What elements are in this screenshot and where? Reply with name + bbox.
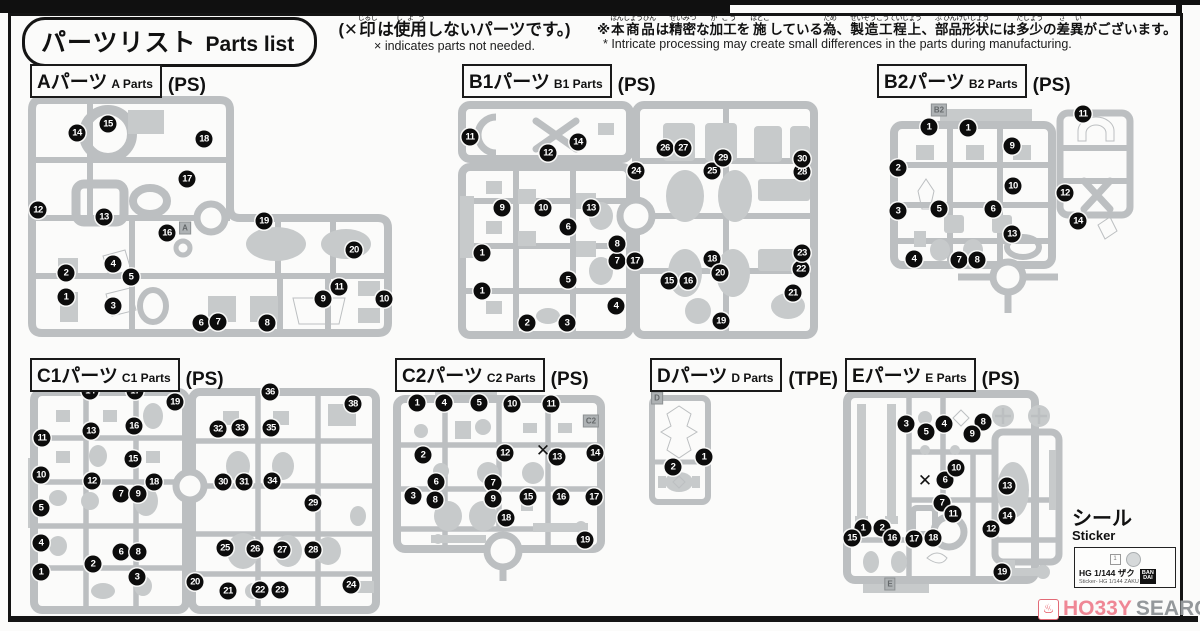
runner-c1-label-en: C1 Parts: [122, 371, 171, 385]
runner-e-material: (PS): [982, 369, 1020, 392]
part-badge-c1-29: 29: [305, 495, 322, 512]
runner-c1-label-jp: C1パーツ: [37, 361, 118, 388]
part-badge-c2-3: 3: [405, 488, 422, 505]
sticker-dot: [1126, 552, 1141, 567]
part-badge-e-15: 15: [844, 530, 861, 547]
part-badge-c1-1: 1: [33, 564, 50, 581]
part-badge-c2-10: 10: [504, 396, 521, 413]
part-badge-b1-27: 27: [675, 140, 692, 157]
part-badge-b1-29: 29: [715, 150, 732, 167]
part-badge-c1-3: 3: [129, 569, 146, 586]
runner-b2-header: B2パーツB2 Parts(PS): [877, 64, 1071, 98]
part-badge-c1-21: 21: [220, 583, 237, 600]
part-badge-c2-18: 18: [498, 510, 515, 527]
part-badge-b1-24: 24: [628, 163, 645, 180]
part-badge-a-19: 19: [256, 213, 273, 230]
title-en: Parts list: [206, 33, 295, 57]
part-badge-a-4: 4: [105, 256, 122, 273]
part-badge-b1-3: 3: [559, 315, 576, 332]
part-badge-c1-23: 23: [272, 582, 289, 599]
part-badge-b1-17: 17: [627, 253, 644, 270]
part-badge-b2-5: 5: [931, 201, 948, 218]
part-badge-a-12: 12: [30, 202, 47, 219]
part-badge-b1-14: 14: [570, 134, 587, 151]
part-badge-e-18: 18: [925, 530, 942, 547]
parts-list-page: パーツリスト Parts list (✕印じるしは使用しようしないパーツです。)…: [0, 0, 1200, 631]
part-badge-b2-12: 12: [1057, 185, 1074, 202]
part-badge-c1-16: 16: [126, 418, 143, 435]
part-badge-a-3: 3: [105, 298, 122, 315]
part-badge-b1-2: 2: [519, 315, 536, 332]
part-badge-c1-5: 5: [33, 500, 50, 517]
part-badge-c1-10: 10: [33, 467, 50, 484]
part-badge-c1-27: 27: [274, 542, 291, 559]
part-badge-c2-5: 5: [471, 395, 488, 412]
part-badge-a-18: 18: [196, 131, 213, 148]
part-badge-b2-1: 1: [960, 120, 977, 137]
note-mfg-jp: ※本商品ほんしょうひんは精密せいみつな加工か こうを施ほどこしている為ため、製造…: [597, 15, 1182, 37]
runner-c1-sprue: [28, 386, 382, 616]
part-badge-e-16: 16: [884, 530, 901, 547]
sticker-kit-sub: Sticker- HG 1/144 ZAKU: [1079, 579, 1139, 585]
part-badge-c1-13: 13: [83, 423, 100, 440]
part-badge-c1-12: 12: [84, 473, 101, 490]
part-badge-b2-9: 9: [1004, 138, 1021, 155]
runner-b2-label-jp: B2パーツ: [884, 67, 965, 94]
part-badge-a-9: 9: [315, 291, 332, 308]
part-badge-c1-28: 28: [305, 542, 322, 559]
runner-d-label-box: DパーツD Parts: [650, 358, 782, 392]
runner-b1-label-box: B1パーツB1 Parts: [462, 64, 612, 98]
part-badge-e-4: 4: [936, 416, 953, 433]
runner-e-sprue: [843, 390, 1065, 612]
part-badge-e-11: 11: [945, 506, 962, 523]
frame-bottom: [8, 616, 1198, 622]
part-badge-b1-11: 11: [462, 129, 479, 146]
part-badge-e-14: 14: [999, 508, 1016, 525]
runner-e-label-box: EパーツE Parts: [845, 358, 976, 392]
runner-c2-label-en: C2 Parts: [487, 371, 536, 385]
part-badge-b2-7: 7: [951, 252, 968, 269]
sticker-sheet: 1 HG 1/144 ザク Sticker- HG 1/144 ZAKU BAN…: [1074, 547, 1176, 588]
part-badge-a-20: 20: [346, 242, 363, 259]
runner-c1-header: C1パーツC1 Parts(PS): [30, 358, 224, 392]
runner-b2-label-en: B2 Parts: [969, 77, 1018, 91]
runner-c2-header: C2パーツC2 Parts(PS): [395, 358, 589, 392]
part-badge-a-5: 5: [123, 269, 140, 286]
part-badge-c1-36: 36: [262, 384, 279, 401]
hobby-search-watermark: ♨ HO33Y SEARCH: [1038, 597, 1200, 621]
part-badge-c2-15: 15: [520, 489, 537, 506]
part-badge-b1-16: 16: [680, 273, 697, 290]
part-badge-c1-33: 33: [232, 420, 249, 437]
runner-b1-sprue: [458, 101, 818, 339]
part-badge-c2-13: 13: [549, 449, 566, 466]
runner-c2-label-box: C2パーツC2 Parts: [395, 358, 545, 392]
runner-e-label-jp: Eパーツ: [852, 361, 921, 388]
part-badge-c2-2: 2: [415, 447, 432, 464]
part-badge-b1-7: 7: [609, 253, 626, 270]
not-used-x-mark-c2: ✕: [536, 441, 550, 461]
part-badge-b1-19: 19: [713, 313, 730, 330]
part-badge-b1-22: 22: [793, 261, 810, 278]
part-badge-b2-2: 2: [890, 160, 907, 177]
note-mfg-en: * Intricate processing may create small …: [597, 38, 1182, 51]
part-badge-e-12: 12: [983, 521, 1000, 538]
part-badge-b1-26: 26: [657, 140, 674, 157]
part-badge-b2-14: 14: [1070, 213, 1087, 230]
part-badge-b1-23: 23: [794, 245, 811, 262]
part-badge-c2-12: 12: [497, 445, 514, 462]
sticker-section: シール Sticker 1 HG 1/144 ザク Sticker- HG 1/…: [1072, 509, 1182, 588]
runner-b2-label-box: B2パーツB2 Parts: [877, 64, 1027, 98]
hobby-search-flame-icon: ♨: [1038, 599, 1059, 620]
runner-e-header: EパーツE Parts(PS): [845, 358, 1020, 392]
part-badge-a-11: 11: [331, 279, 348, 296]
part-badge-b2-6: 6: [985, 201, 1002, 218]
runner-a-material: (PS): [168, 75, 206, 98]
part-badge-e-3: 3: [898, 416, 915, 433]
part-badge-c2-7: 7: [485, 475, 502, 492]
runner-a-header: AパーツA Parts(PS): [30, 64, 206, 98]
note-manufacturing: ※本商品ほんしょうひんは精密せいみつな加工か こうを施ほどこしている為ため、製造…: [597, 15, 1182, 51]
part-badge-c1-7: 7: [113, 486, 130, 503]
watermark-hobby: HO33Y: [1063, 597, 1132, 621]
part-badge-c1-26: 26: [247, 541, 264, 558]
part-badge-b2-1: 1: [921, 119, 938, 136]
part-badge-c1-35: 35: [263, 420, 280, 437]
part-badge-c1-31: 31: [236, 474, 253, 491]
runner-b1-label-en: B1 Parts: [554, 77, 603, 91]
runner-b1-material: (PS): [618, 75, 656, 98]
part-badge-c2-17: 17: [586, 489, 603, 506]
runner-c1-label-box: C1パーツC1 Parts: [30, 358, 180, 392]
part-badge-b1-1: 1: [474, 283, 491, 300]
part-badge-b2-4: 4: [906, 251, 923, 268]
part-badge-e-5: 5: [918, 424, 935, 441]
part-badge-c1-15: 15: [125, 451, 142, 468]
note-x-jp: (✕印じるしは使用しようしないパーツです。): [312, 15, 597, 39]
part-badge-b2-13: 13: [1004, 226, 1021, 243]
runner-b1-label-jp: B1パーツ: [469, 67, 550, 94]
top-border-bar-left: [0, 0, 730, 13]
bandai-logo: BAN DAI: [1140, 569, 1156, 584]
part-badge-c1-24: 24: [343, 577, 360, 594]
part-badge-c1-34: 34: [264, 473, 281, 490]
part-badge-b2-3: 3: [890, 203, 907, 220]
part-badge-b1-1: 1: [474, 245, 491, 262]
part-badge-b1-12: 12: [540, 145, 557, 162]
runner-b1-header: B1パーツB1 Parts(PS): [462, 64, 656, 98]
part-badge-a-1: 1: [58, 289, 75, 306]
sticker-kit-name: HG 1/144 ザク: [1079, 567, 1139, 579]
part-badge-e-9: 9: [964, 426, 981, 443]
runner-c2-material: (PS): [551, 369, 589, 392]
part-badge-c1-19: 19: [167, 394, 184, 411]
part-badge-d-2: 2: [665, 459, 682, 476]
runner-b2-material: (PS): [1033, 75, 1071, 98]
runner-a-label-jp: Aパーツ: [37, 67, 107, 94]
sticker-label-jp: シール: [1072, 509, 1182, 529]
part-badge-b2-10: 10: [1005, 178, 1022, 195]
runner-e-label-en: E Parts: [925, 371, 966, 385]
part-badge-b2-8: 8: [969, 252, 986, 269]
part-badge-b1-10: 10: [535, 200, 552, 217]
top-border-bar-right: [1176, 0, 1182, 13]
part-badge-c1-2: 2: [85, 556, 102, 573]
runner-d-header: DパーツD Parts(TPE): [650, 358, 838, 392]
sticker-label-en: Sticker: [1072, 529, 1182, 543]
part-badge-c1-8: 8: [130, 544, 147, 561]
title-jp: パーツリスト: [41, 23, 197, 59]
part-badge-a-14: 14: [69, 125, 86, 142]
part-badge-b1-30: 30: [794, 151, 811, 168]
part-badge-b1-4: 4: [608, 298, 625, 315]
part-badge-c2-16: 16: [553, 489, 570, 506]
part-badge-c1-38: 38: [345, 396, 362, 413]
runner-a-label-en: A Parts: [111, 77, 153, 91]
note-parts-not-needed: (✕印じるしは使用しようしないパーツです。) × indicates parts…: [312, 15, 597, 53]
part-badge-e-13: 13: [999, 478, 1016, 495]
runner-b2-sprue-tag: B2: [931, 104, 947, 117]
part-badge-c2-1: 1: [409, 395, 426, 412]
top-border-divider: [727, 0, 730, 13]
part-badge-c1-18: 18: [146, 474, 163, 491]
part-badge-a-15: 15: [100, 116, 117, 133]
part-badge-c2-19: 19: [577, 532, 594, 549]
parts-list-title: パーツリスト Parts list: [22, 17, 317, 67]
part-badge-b1-9: 9: [494, 200, 511, 217]
part-badge-c1-22: 22: [252, 582, 269, 599]
part-badge-a-16: 16: [159, 225, 176, 242]
part-badge-b1-15: 15: [661, 273, 678, 290]
part-badge-c1-11: 11: [34, 430, 51, 447]
part-badge-c1-4: 4: [33, 535, 50, 552]
part-badge-e-10: 10: [948, 460, 965, 477]
part-badge-b1-5: 5: [560, 272, 577, 289]
frame-left: [8, 13, 11, 616]
part-badge-c1-6: 6: [113, 544, 130, 561]
runner-c2-sprue-tag: C2: [583, 415, 599, 428]
runner-d-material: (TPE): [788, 369, 838, 392]
part-badge-d-1: 1: [696, 449, 713, 466]
part-badge-e-19: 19: [994, 564, 1011, 581]
runner-a-label-box: AパーツA Parts: [30, 64, 162, 98]
note-x-en: × indicates parts not needed.: [312, 40, 597, 53]
part-badge-e-17: 17: [906, 531, 923, 548]
part-badge-c2-6: 6: [428, 474, 445, 491]
runner-d-label-jp: Dパーツ: [657, 361, 727, 388]
runner-c1-material: (PS): [186, 369, 224, 392]
part-badge-a-6: 6: [193, 315, 210, 332]
part-badge-b2-11: 11: [1075, 106, 1092, 123]
part-badge-a-8: 8: [259, 315, 276, 332]
part-badge-a-10: 10: [376, 291, 393, 308]
part-badge-b1-20: 20: [712, 265, 729, 282]
runner-c2-label-jp: C2パーツ: [402, 361, 483, 388]
part-badge-c2-4: 4: [436, 395, 453, 412]
part-badge-a-7: 7: [210, 314, 227, 331]
part-badge-b1-6: 6: [560, 219, 577, 236]
part-badge-c1-25: 25: [217, 540, 234, 557]
part-badge-c1-30: 30: [215, 474, 232, 491]
runner-d-label-en: D Parts: [731, 371, 773, 385]
runner-e-sprue-tag: E: [884, 578, 895, 591]
part-badge-c2-9: 9: [485, 491, 502, 508]
part-badge-a-17: 17: [179, 171, 196, 188]
watermark-search: SEARCH: [1136, 597, 1200, 621]
part-badge-b1-8: 8: [609, 236, 626, 253]
part-badge-b1-21: 21: [785, 285, 802, 302]
part-badge-c1-20: 20: [187, 574, 204, 591]
runner-d-sprue-tag: D: [651, 392, 663, 405]
not-used-x-mark-e: ✕: [918, 471, 932, 491]
part-badge-b1-13: 13: [583, 200, 600, 217]
part-badge-c1-9: 9: [130, 486, 147, 503]
sticker-chip: 1: [1110, 554, 1121, 565]
part-badge-c2-14: 14: [587, 445, 604, 462]
part-badge-c2-11: 11: [543, 396, 560, 413]
part-badge-c1-32: 32: [210, 421, 227, 438]
part-badge-a-13: 13: [96, 209, 113, 226]
part-badge-c2-8: 8: [427, 492, 444, 509]
part-badge-a-2: 2: [58, 265, 75, 282]
bandai-logo-bottom: DAI: [1142, 576, 1154, 582]
runner-a-sprue-tag: A: [179, 222, 191, 235]
